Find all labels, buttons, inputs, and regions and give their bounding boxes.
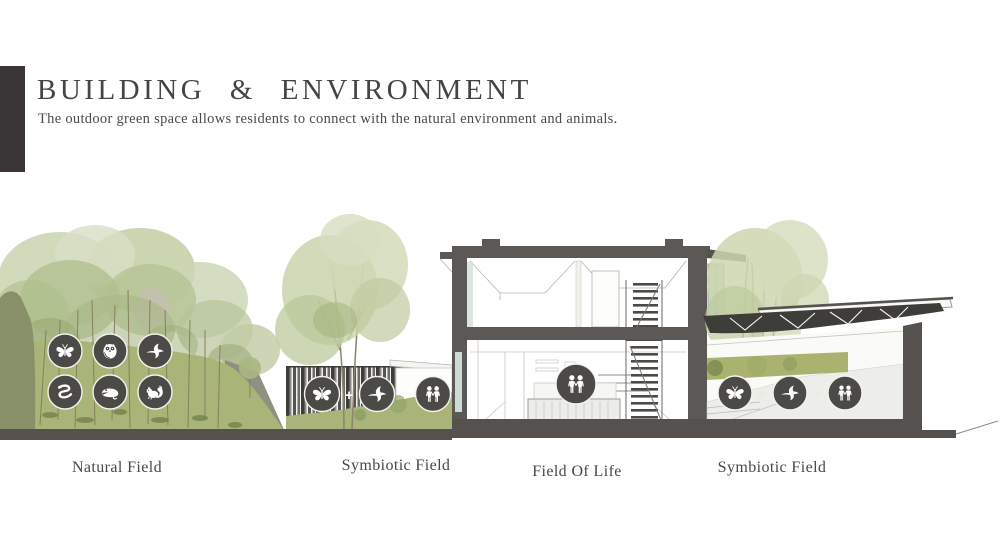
symbiotic-field-right-illustration: + + [703, 220, 953, 430]
squirrel-icon [138, 375, 172, 409]
right-wall [903, 322, 922, 430]
label-natural-field: Natural Field [37, 459, 197, 477]
people-icon [416, 377, 451, 412]
plus-sign: + [345, 387, 354, 404]
bird-icon [138, 334, 172, 368]
parapet [482, 239, 500, 247]
bird-icon [773, 376, 807, 410]
label-symbiotic-field-right: Symbiotic Field [692, 459, 852, 477]
label-field-of-life: Field Of Life [497, 463, 657, 481]
roof-overhang [440, 252, 453, 259]
right-wall [688, 246, 707, 438]
roof-slab [452, 246, 710, 258]
building-section-illustration [440, 239, 710, 438]
plus-sign: + [401, 387, 410, 404]
people-icon [556, 364, 596, 404]
slide: BUILDING & ENVIRONMENT The outdoor green… [0, 0, 1000, 560]
pavilion [703, 298, 953, 430]
snake-icon [48, 375, 82, 409]
owl-icon [93, 334, 127, 368]
plus-sign: + [758, 386, 767, 403]
label-symbiotic-field-left: Symbiotic Field [316, 457, 476, 475]
parapet [665, 239, 683, 247]
butterfly-icon [305, 377, 340, 412]
frog-icon [93, 375, 127, 409]
bird-icon [360, 377, 395, 412]
plus-sign: + [813, 386, 822, 403]
butterfly-icon [718, 376, 752, 410]
symbiotic-field-left-illustration: + + [275, 214, 453, 430]
left-wall-glass [455, 352, 462, 412]
butterfly-icon [48, 334, 82, 368]
natural-field-illustration [0, 225, 285, 432]
people-icon [828, 376, 862, 410]
mid-floor-slab [465, 327, 690, 340]
